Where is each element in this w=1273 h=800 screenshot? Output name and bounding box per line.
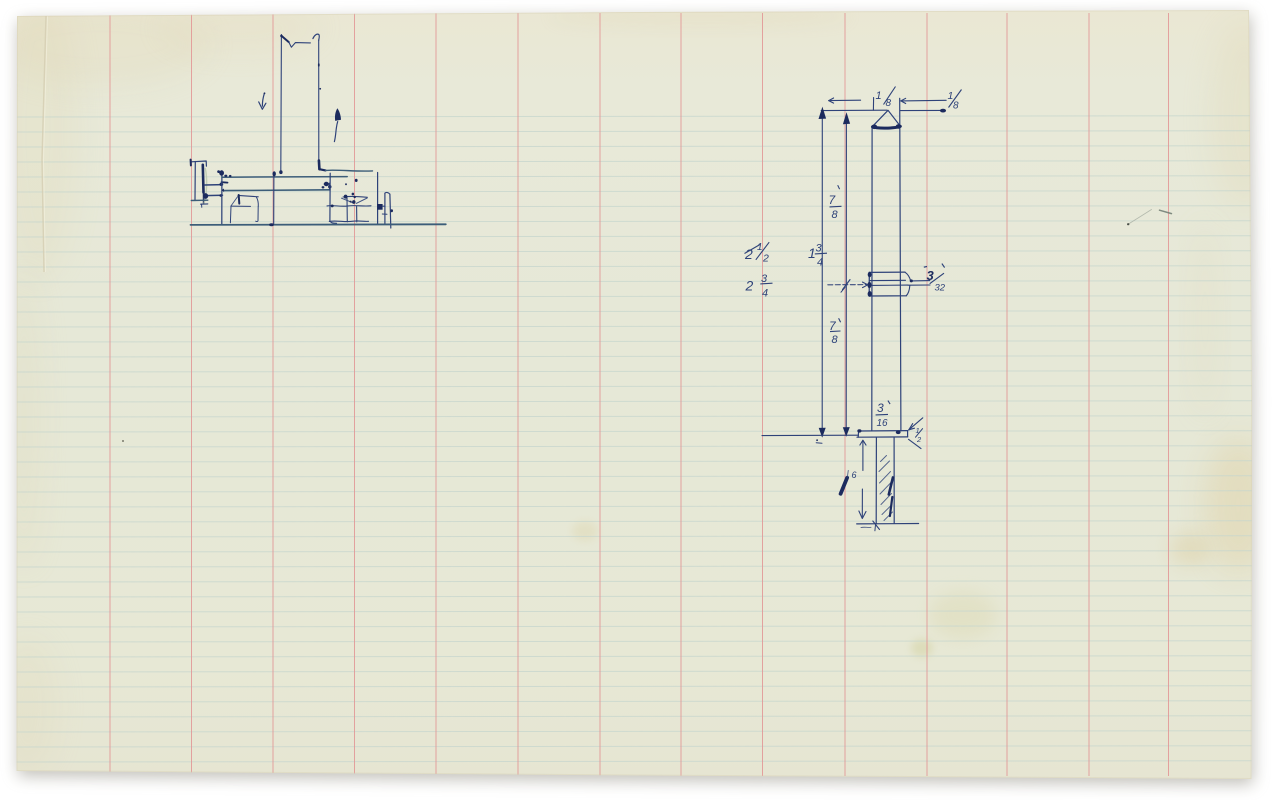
svg-text:8: 8 [886,98,892,109]
svg-text:3: 3 [877,401,884,415]
svg-text:2: 2 [745,278,754,294]
svg-text:2: 2 [762,253,769,265]
svg-text:8: 8 [953,101,959,112]
svg-text:8: 8 [832,334,839,346]
svg-text:32: 32 [935,283,946,294]
svg-text:4: 4 [817,257,823,269]
svg-text:2: 2 [916,435,922,444]
svg-text:4: 4 [762,288,768,300]
svg-text:6: 6 [852,470,857,480]
svg-text:2: 2 [744,246,753,262]
svg-text:1: 1 [916,426,920,435]
svg-text:1: 1 [876,90,882,102]
svg-text:16: 16 [877,418,889,429]
svg-text:8: 8 [832,209,839,221]
svg-text:3: 3 [816,243,823,255]
